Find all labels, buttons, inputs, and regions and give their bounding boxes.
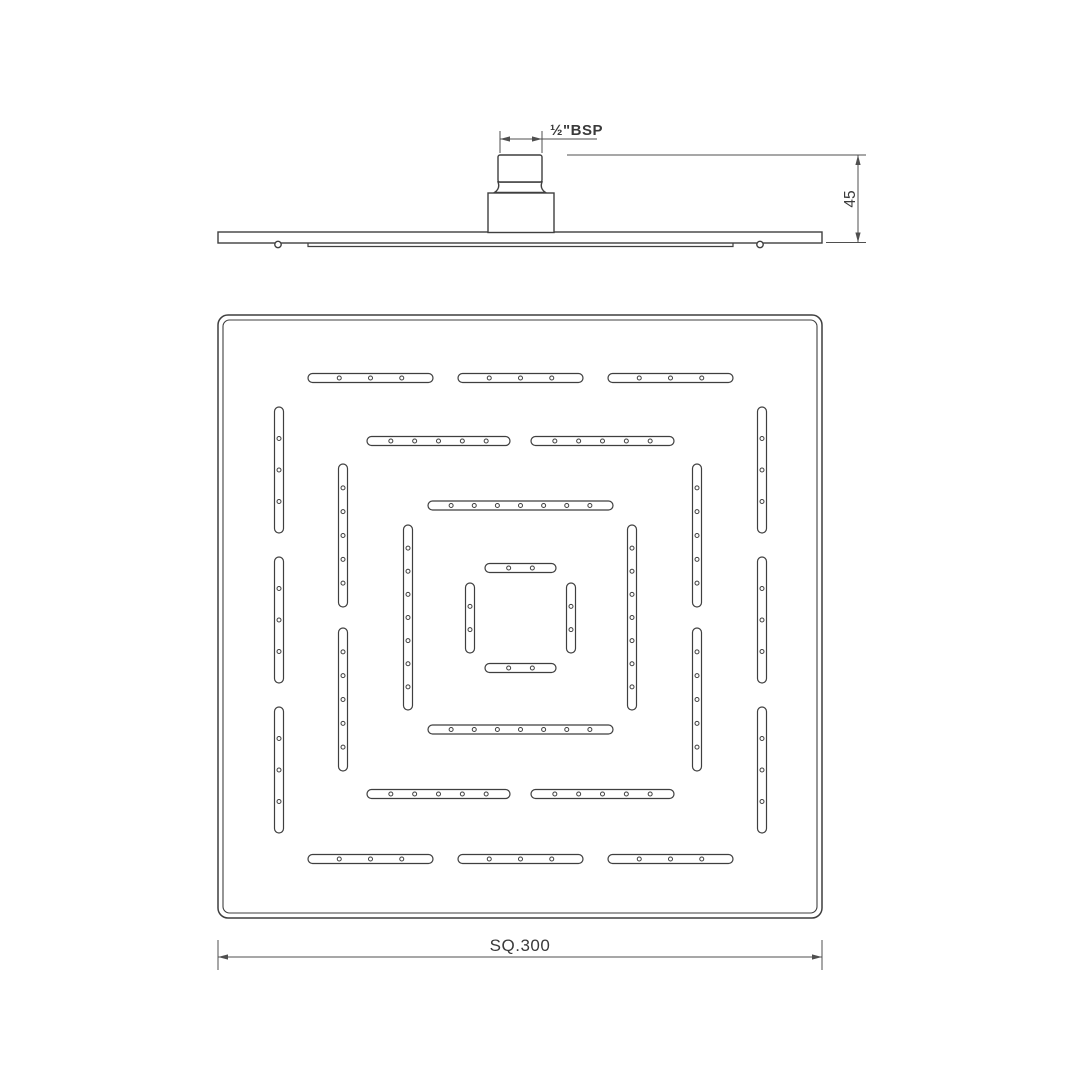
nozzle-dot — [341, 674, 345, 678]
nozzle-slot — [458, 374, 583, 383]
nozzle-dot — [337, 857, 341, 861]
nozzle-slot — [758, 707, 767, 833]
nozzle-dot — [553, 439, 557, 443]
nozzle-dot — [519, 857, 523, 861]
nozzle-dot — [437, 792, 441, 796]
nozzle-dot — [565, 728, 569, 732]
nozzle-slot — [693, 464, 702, 607]
nozzle-dot — [460, 792, 464, 796]
nozzle-dot — [341, 745, 345, 749]
nozzle-dot — [760, 650, 764, 654]
nozzle-dot — [277, 437, 281, 441]
nozzle-dot — [695, 510, 699, 514]
nozzle-dot — [519, 504, 523, 508]
nozzle-dot — [695, 557, 699, 561]
nozzle-dot — [277, 800, 281, 804]
nozzle-dot — [530, 666, 534, 670]
nozzle-slot — [531, 437, 674, 446]
nozzle-slot — [308, 855, 433, 864]
nozzle-dot — [277, 737, 281, 741]
nozzle-dot — [669, 376, 673, 380]
nozzle-slot — [485, 664, 556, 673]
nozzle-dot — [637, 857, 641, 861]
nozzle-dot — [468, 628, 472, 632]
nozzle-dot — [760, 618, 764, 622]
nozzle-dot — [760, 468, 764, 472]
nozzle-dot — [550, 857, 554, 861]
nozzle-slot — [339, 464, 348, 607]
nozzle-slot — [339, 628, 348, 771]
nozzle-dot — [277, 587, 281, 591]
nozzle-dot — [695, 534, 699, 538]
nozzle-dot — [630, 592, 634, 596]
nozzle-dot — [406, 639, 410, 643]
nozzle-slot-pattern — [275, 374, 767, 864]
nozzle-slot — [428, 501, 613, 510]
arrowhead-down-icon — [855, 233, 860, 243]
nozzle-slot — [404, 525, 413, 710]
nozzle-dot — [577, 792, 581, 796]
nozzle-dot — [695, 745, 699, 749]
nozzle-slot — [275, 707, 284, 833]
nozzle-dot — [449, 728, 453, 732]
nozzle-dot — [760, 500, 764, 504]
side-view — [218, 155, 822, 248]
nozzle-dot — [277, 650, 281, 654]
nozzle-dot — [400, 376, 404, 380]
nozzle-dot — [553, 792, 557, 796]
nozzle-dot — [577, 439, 581, 443]
nozzle-slot — [466, 583, 475, 653]
nozzle-dot — [630, 685, 634, 689]
nozzle-dot — [542, 728, 546, 732]
nozzle-slot — [428, 725, 613, 734]
nozzle-dot — [341, 510, 345, 514]
nozzle-slot — [275, 557, 284, 683]
shower-plate-side — [218, 232, 822, 243]
arrowhead-left-icon — [218, 954, 228, 959]
height-dimension: 45 — [567, 155, 866, 243]
bsp-thread-dimension: ½"BSP — [500, 122, 603, 153]
nozzle-dot — [624, 439, 628, 443]
threaded-inlet-pipe — [498, 155, 542, 182]
nozzle-slot — [608, 855, 733, 864]
nozzle-dot — [468, 604, 472, 608]
connector-neck — [495, 182, 546, 193]
plan-view — [218, 315, 822, 918]
nozzle-dot — [648, 792, 652, 796]
nozzle-dot — [495, 728, 499, 732]
nozzle-dot — [669, 857, 673, 861]
nozzle-dot — [487, 857, 491, 861]
nozzle-dot — [630, 616, 634, 620]
nozzle-dot — [601, 439, 605, 443]
nozzle-dot — [630, 546, 634, 550]
nozzle-dot — [472, 504, 476, 508]
nozzle-dot — [624, 792, 628, 796]
nozzle-dot — [760, 768, 764, 772]
nozzle-dot — [277, 618, 281, 622]
nozzle-dot — [695, 581, 699, 585]
nozzle-slot — [485, 564, 556, 573]
nozzle-dot — [337, 376, 341, 380]
nozzle-dot — [277, 500, 281, 504]
nozzle-dot — [519, 376, 523, 380]
nozzle-slot — [531, 790, 674, 799]
nozzle-dot — [588, 504, 592, 508]
nozzle-dot — [550, 376, 554, 380]
nozzle-slot — [367, 437, 510, 446]
nozzle-slot — [628, 525, 637, 710]
nozzle-dot — [341, 650, 345, 654]
nozzle-dot — [630, 662, 634, 666]
nozzle-dot — [695, 486, 699, 490]
nozzle-dot — [341, 721, 345, 725]
nozzle-dot — [472, 728, 476, 732]
nozzle-dot — [695, 674, 699, 678]
nozzle-dot — [695, 650, 699, 654]
nozzle-dot — [760, 737, 764, 741]
nozzle-dot — [406, 662, 410, 666]
nozzle-dot — [495, 504, 499, 508]
nozzle-dot — [519, 728, 523, 732]
nozzle-dot — [400, 857, 404, 861]
nozzle-dot — [630, 569, 634, 573]
nozzle-dot — [648, 439, 652, 443]
nozzle-dot — [588, 728, 592, 732]
nozzle-slot — [758, 407, 767, 533]
nozzle-dot — [569, 604, 573, 608]
bsp-thread-label: ½"BSP — [550, 122, 603, 139]
edge-nozzle-right — [757, 241, 763, 247]
nozzle-dot — [507, 666, 511, 670]
nozzle-dot — [389, 439, 393, 443]
nozzle-dot — [341, 581, 345, 585]
nozzle-dot — [700, 857, 704, 861]
nozzle-dot — [406, 616, 410, 620]
nozzle-dot — [487, 376, 491, 380]
nozzle-dot — [630, 639, 634, 643]
nozzle-dot — [530, 566, 534, 570]
nozzle-dot — [449, 504, 453, 508]
size-dimension-label: SQ.300 — [490, 936, 551, 955]
nozzle-dot — [413, 792, 417, 796]
edge-nozzle-left — [275, 241, 281, 247]
arrowhead-right-icon — [812, 954, 822, 959]
nozzle-dot — [507, 566, 511, 570]
nozzle-dot — [341, 534, 345, 538]
nozzle-dot — [569, 628, 573, 632]
plate-outer-edge — [218, 315, 822, 918]
nozzle-dot — [406, 569, 410, 573]
width-dimension: SQ.300 — [218, 936, 822, 970]
nozzle-dot — [565, 504, 569, 508]
nozzle-slot — [567, 583, 576, 653]
nozzle-slot — [693, 628, 702, 771]
nozzle-slot — [275, 407, 284, 533]
nozzle-dot — [695, 721, 699, 725]
nozzle-dot — [484, 439, 488, 443]
nozzle-dot — [542, 504, 546, 508]
nozzle-dot — [369, 857, 373, 861]
nozzle-dot — [760, 800, 764, 804]
nozzle-dot — [406, 592, 410, 596]
arrowhead-up-icon — [855, 155, 860, 165]
nozzle-dot — [277, 468, 281, 472]
nozzle-dot — [406, 546, 410, 550]
nozzle-dot — [277, 768, 281, 772]
nozzle-dot — [413, 439, 417, 443]
nozzle-dot — [484, 792, 488, 796]
height-dimension-label: 45 — [842, 190, 859, 207]
nozzle-slot — [367, 790, 510, 799]
nozzle-dot — [341, 486, 345, 490]
nozzle-dot — [700, 376, 704, 380]
nozzle-dot — [341, 698, 345, 702]
nozzle-slot — [308, 374, 433, 383]
technical-drawing-page: ½"BSP 45 SQ.300 — [0, 0, 1080, 1080]
nozzle-dot — [406, 685, 410, 689]
nozzle-slot — [608, 374, 733, 383]
connector-base-block — [488, 193, 554, 233]
shower-head-technical-drawing: ½"BSP 45 SQ.300 — [0, 0, 1080, 1080]
nozzle-dot — [460, 439, 464, 443]
plate-inner-edge — [223, 320, 817, 913]
arrowhead-right-icon — [532, 136, 542, 141]
nozzle-dot — [637, 376, 641, 380]
nozzle-dot — [341, 557, 345, 561]
nozzle-slot — [458, 855, 583, 864]
nozzle-dot — [760, 587, 764, 591]
nozzle-dot — [695, 698, 699, 702]
nozzle-dot — [437, 439, 441, 443]
nozzle-dot — [369, 376, 373, 380]
arrowhead-left-icon — [500, 136, 510, 141]
nozzle-dot — [601, 792, 605, 796]
nozzle-dot — [760, 437, 764, 441]
nozzle-slot — [758, 557, 767, 683]
nozzle-dot — [389, 792, 393, 796]
